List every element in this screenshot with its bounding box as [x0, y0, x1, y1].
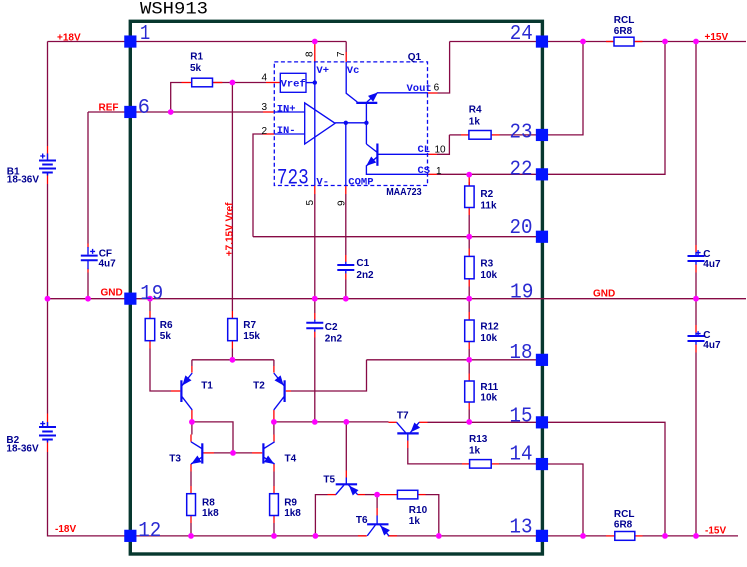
svg-text:5: 5 — [305, 200, 316, 206]
svg-text:REF: REF — [99, 102, 119, 113]
svg-text:C1: C1 — [356, 258, 369, 269]
svg-text:R4: R4 — [469, 105, 482, 116]
svg-text:15k: 15k — [243, 331, 260, 342]
svg-text:1k8: 1k8 — [202, 508, 219, 519]
svg-text:T5: T5 — [323, 475, 335, 486]
svg-text:T1: T1 — [201, 381, 213, 392]
svg-text:6R8: 6R8 — [614, 520, 633, 531]
svg-text:7: 7 — [336, 51, 347, 57]
svg-text:RCL: RCL — [614, 509, 635, 520]
svg-text:4u7: 4u7 — [703, 259, 721, 270]
svg-text:R7: R7 — [243, 320, 256, 331]
svg-text:2n2: 2n2 — [325, 334, 343, 345]
svg-text:R10: R10 — [409, 505, 428, 516]
svg-text:1k8: 1k8 — [284, 508, 301, 519]
svg-text:RCL: RCL — [614, 15, 635, 26]
svg-text:+18V: +18V — [57, 32, 81, 43]
svg-text:2n2: 2n2 — [356, 270, 374, 281]
svg-text:2: 2 — [262, 126, 268, 137]
svg-text:+7.15V Vref: +7.15V Vref — [224, 202, 235, 256]
svg-text:Vref: Vref — [281, 79, 306, 91]
svg-text:T4: T4 — [285, 454, 297, 465]
svg-text:18-36V: 18-36V — [7, 175, 40, 186]
svg-text:12: 12 — [138, 520, 161, 543]
svg-text:20: 20 — [510, 217, 533, 240]
svg-text:4u7: 4u7 — [99, 258, 117, 269]
svg-text:18-36V: 18-36V — [6, 443, 39, 454]
svg-text:IN-: IN- — [277, 125, 296, 137]
svg-text:4u7: 4u7 — [703, 340, 721, 351]
svg-text:R9: R9 — [284, 497, 297, 508]
svg-text:R2: R2 — [480, 189, 493, 200]
svg-text:1: 1 — [140, 23, 150, 46]
svg-text:GND: GND — [101, 288, 123, 299]
svg-text:1: 1 — [436, 166, 442, 177]
svg-text:Q1: Q1 — [408, 52, 422, 63]
svg-text:R1: R1 — [190, 52, 203, 63]
svg-text:R13: R13 — [469, 434, 488, 445]
svg-text:24: 24 — [510, 23, 533, 46]
svg-text:Vc: Vc — [347, 65, 360, 77]
svg-text:10k: 10k — [480, 393, 497, 404]
svg-text:5k: 5k — [190, 63, 202, 74]
svg-text:-15V: -15V — [705, 526, 726, 537]
svg-text:22: 22 — [510, 159, 533, 182]
svg-text:10k: 10k — [480, 333, 497, 344]
svg-text:MAA723: MAA723 — [386, 187, 422, 198]
svg-text:19: 19 — [140, 283, 163, 306]
svg-text:+15V: +15V — [705, 32, 729, 43]
svg-text:13: 13 — [510, 517, 533, 540]
svg-text:6R8: 6R8 — [614, 26, 633, 37]
svg-text:COMP: COMP — [348, 176, 373, 188]
svg-text:V-: V- — [316, 176, 329, 188]
svg-text:723: 723 — [277, 166, 309, 191]
svg-text:Vout: Vout — [407, 83, 432, 95]
svg-text:6: 6 — [434, 82, 440, 93]
svg-text:T3: T3 — [169, 454, 181, 465]
svg-text:10: 10 — [435, 145, 447, 156]
svg-text:R3: R3 — [480, 259, 493, 270]
svg-text:19: 19 — [510, 282, 533, 305]
svg-text:CS: CS — [418, 165, 431, 177]
svg-text:T2: T2 — [253, 381, 265, 392]
svg-text:10k: 10k — [480, 270, 497, 281]
svg-text:15: 15 — [510, 405, 533, 428]
svg-text:R6: R6 — [160, 320, 173, 331]
svg-text:6: 6 — [138, 97, 150, 120]
svg-text:18: 18 — [510, 342, 533, 365]
svg-text:1k: 1k — [409, 516, 421, 527]
svg-text:C2: C2 — [325, 322, 338, 333]
svg-text:WSH913: WSH913 — [140, 0, 208, 20]
svg-text:R8: R8 — [202, 497, 215, 508]
svg-text:T6: T6 — [356, 515, 368, 526]
svg-text:GND: GND — [593, 289, 615, 300]
svg-text:-18V: -18V — [55, 524, 76, 535]
svg-text:9: 9 — [337, 200, 348, 206]
svg-text:1k: 1k — [469, 117, 481, 128]
svg-text:3: 3 — [262, 102, 268, 113]
svg-text:IN+: IN+ — [277, 104, 296, 116]
svg-text:T7: T7 — [397, 410, 409, 421]
svg-text:4: 4 — [262, 72, 268, 83]
svg-text:11k: 11k — [480, 201, 497, 212]
svg-text:5k: 5k — [160, 331, 172, 342]
svg-text:1k: 1k — [469, 446, 481, 457]
svg-text:V+: V+ — [316, 65, 329, 77]
svg-text:CL: CL — [418, 144, 431, 156]
svg-text:14: 14 — [510, 444, 533, 467]
svg-text:8: 8 — [305, 51, 316, 57]
svg-text:23: 23 — [510, 121, 533, 144]
svg-text:R12: R12 — [480, 322, 499, 333]
